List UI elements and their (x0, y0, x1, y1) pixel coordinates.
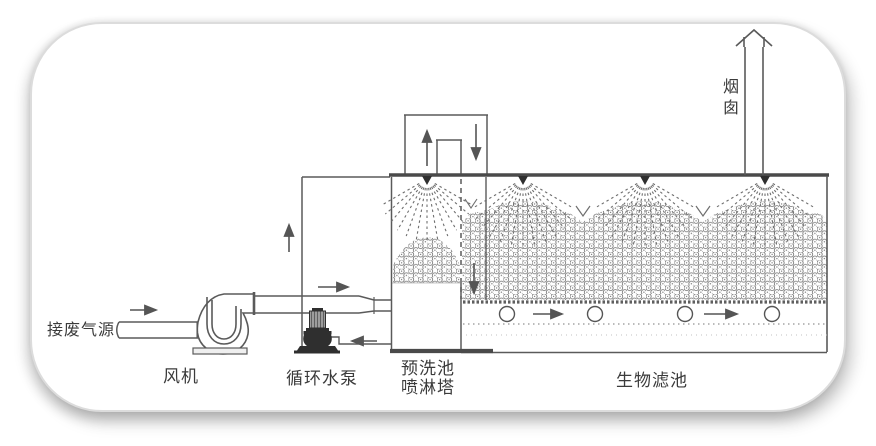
biofilter-media-bed (462, 199, 827, 300)
label-biofilter: 生物滤池 (611, 371, 693, 390)
inlet-pipe (117, 322, 198, 338)
diagram-stage: 接废气源 风机 循环水泵 预洗池 喷淋塔 生物滤池 烟囱 (0, 0, 876, 446)
label-fan: 风机 (150, 367, 212, 386)
chimney-icon (736, 30, 772, 175)
tower-media-bed (392, 238, 460, 284)
label-prewash-tower: 预洗池 喷淋塔 (392, 359, 464, 397)
label-chimney: 烟囱 (719, 69, 738, 129)
fan-icon (193, 292, 254, 354)
circulation-pump-icon (294, 308, 391, 354)
spray-nozzle-icon (382, 176, 471, 241)
label-circulation-pump: 循环水泵 (282, 369, 362, 388)
label-gas-inlet: 接废气源 (40, 321, 122, 340)
